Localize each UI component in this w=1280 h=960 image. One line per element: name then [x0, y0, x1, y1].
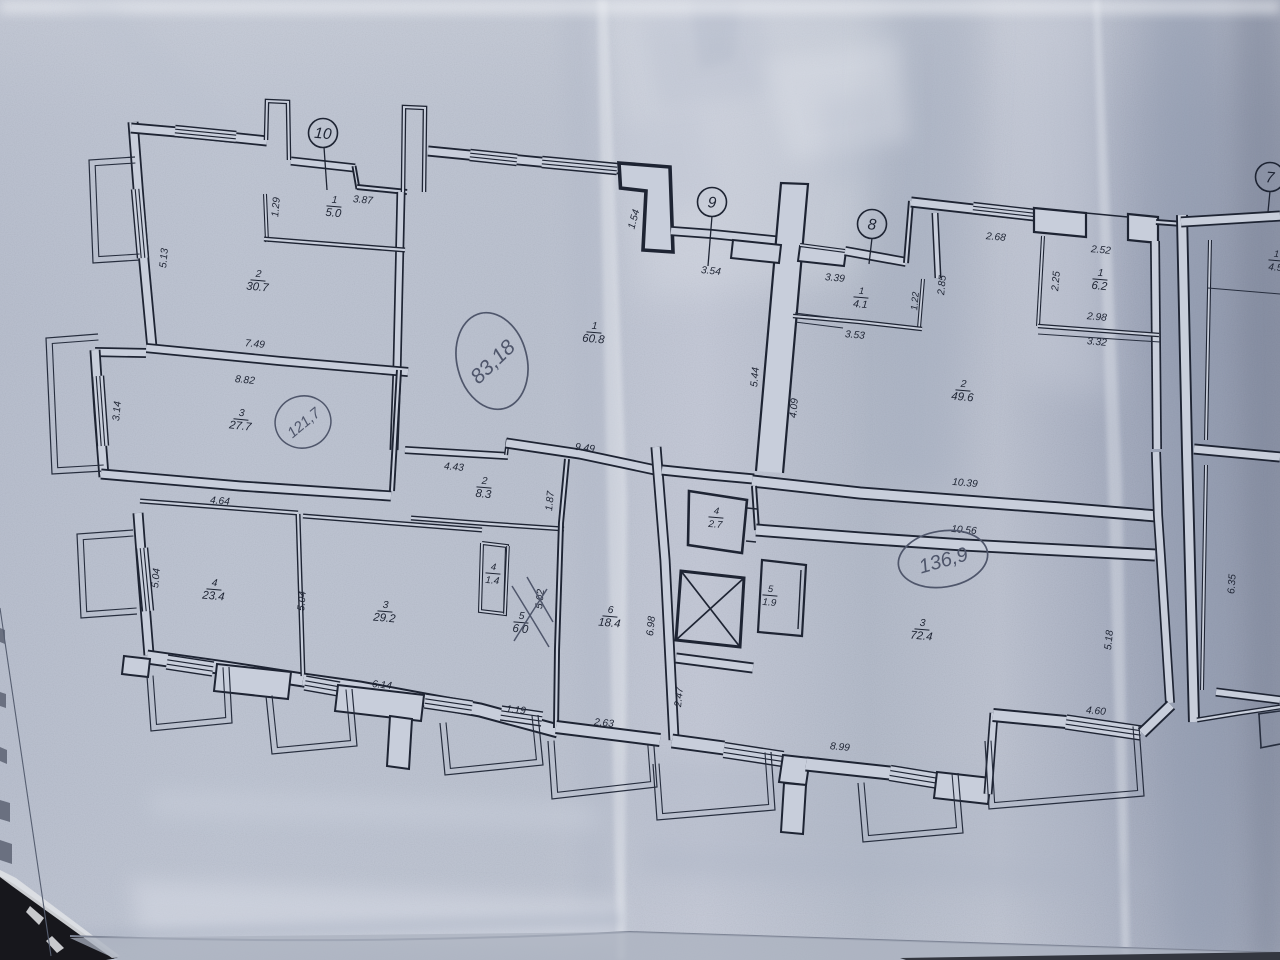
svg-text:8.82: 8.82: [234, 374, 255, 387]
svg-text:4.64: 4.64: [210, 495, 231, 508]
svg-text:2.52: 2.52: [1090, 244, 1112, 257]
svg-text:49.6: 49.6: [951, 391, 975, 405]
svg-text:3.54: 3.54: [700, 265, 721, 278]
svg-text:1.87: 1.87: [544, 490, 557, 511]
svg-text:1: 1: [1273, 249, 1279, 260]
svg-text:7.49: 7.49: [245, 338, 266, 351]
svg-text:1.9: 1.9: [762, 597, 777, 609]
svg-text:6.98: 6.98: [645, 615, 658, 636]
svg-text:8.99: 8.99: [830, 741, 851, 754]
svg-text:3.39: 3.39: [825, 272, 846, 285]
svg-text:2.7: 2.7: [707, 519, 723, 531]
svg-text:10: 10: [314, 125, 333, 143]
svg-text:1.4: 1.4: [485, 575, 500, 587]
svg-text:2.85: 2.85: [936, 274, 949, 296]
svg-text:4.43: 4.43: [444, 461, 465, 474]
svg-text:1: 1: [331, 195, 338, 206]
svg-text:1: 1: [1097, 268, 1104, 279]
svg-text:10.39: 10.39: [952, 477, 979, 490]
svg-text:2: 2: [480, 476, 488, 488]
svg-text:4.5: 4.5: [1268, 262, 1280, 274]
svg-text:3.14: 3.14: [111, 400, 124, 421]
svg-text:5.04: 5.04: [150, 567, 163, 588]
svg-text:6.2: 6.2: [1091, 280, 1108, 293]
svg-text:30.7: 30.7: [246, 281, 270, 295]
svg-text:2.98: 2.98: [1086, 311, 1108, 324]
svg-text:2.25: 2.25: [1050, 270, 1063, 292]
svg-text:8.3: 8.3: [475, 488, 492, 501]
svg-text:4: 4: [490, 562, 496, 573]
svg-text:5.13: 5.13: [158, 247, 171, 268]
svg-text:1: 1: [591, 321, 598, 332]
svg-text:27.7: 27.7: [228, 419, 253, 433]
svg-text:2.47: 2.47: [673, 686, 686, 708]
svg-text:4.1: 4.1: [853, 298, 869, 311]
svg-text:3.32: 3.32: [1087, 336, 1108, 349]
svg-text:1.22: 1.22: [909, 291, 922, 311]
svg-text:5.04: 5.04: [296, 590, 309, 611]
svg-text:1.19: 1.19: [505, 704, 526, 717]
svg-text:5.18: 5.18: [1103, 629, 1116, 650]
svg-text:2: 2: [959, 379, 967, 391]
svg-text:2: 2: [254, 269, 262, 281]
svg-text:18.4: 18.4: [598, 617, 621, 631]
svg-text:1.29: 1.29: [270, 196, 283, 217]
svg-text:1: 1: [858, 286, 864, 297]
svg-text:29.2: 29.2: [372, 611, 397, 625]
svg-text:3.53: 3.53: [845, 329, 866, 342]
svg-text:3.87: 3.87: [353, 194, 374, 207]
svg-text:6.14: 6.14: [371, 679, 392, 692]
svg-text:2.68: 2.68: [985, 231, 1007, 244]
svg-text:60.8: 60.8: [582, 333, 606, 347]
svg-text:5.0: 5.0: [325, 207, 342, 220]
svg-text:23.4: 23.4: [201, 589, 225, 603]
svg-text:5.44: 5.44: [749, 366, 762, 387]
svg-text:2.63: 2.63: [592, 717, 614, 730]
svg-text:4.60: 4.60: [1086, 705, 1107, 718]
svg-text:72.4: 72.4: [910, 630, 933, 644]
svg-text:4.09: 4.09: [788, 397, 801, 418]
svg-text:4: 4: [713, 506, 719, 517]
svg-text:6.35: 6.35: [1226, 573, 1238, 594]
